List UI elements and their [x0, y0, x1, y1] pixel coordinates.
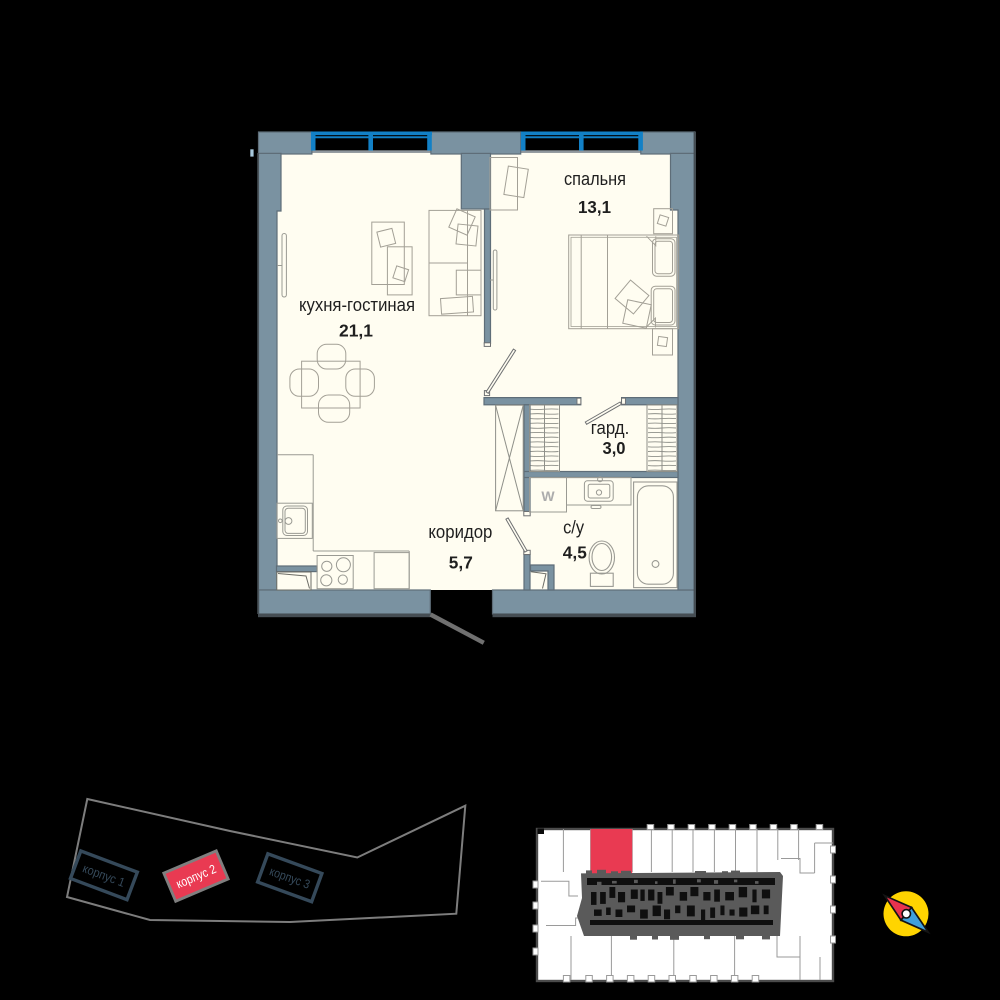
svg-text:21,1: 21,1 — [339, 321, 373, 341]
svg-text:с/у: с/у — [563, 517, 585, 538]
svg-text:гард.: гард. — [591, 417, 630, 438]
svg-text:3,0: 3,0 — [603, 438, 626, 458]
svg-text:кухня-гостиная: кухня-гостиная — [299, 294, 415, 315]
svg-text:W: W — [541, 488, 555, 504]
svg-text:спальня: спальня — [564, 168, 626, 189]
svg-text:5,7: 5,7 — [449, 553, 473, 573]
svg-text:коридор: коридор — [428, 521, 492, 542]
svg-text:13,1: 13,1 — [578, 197, 611, 217]
svg-text:4,5: 4,5 — [563, 543, 587, 563]
